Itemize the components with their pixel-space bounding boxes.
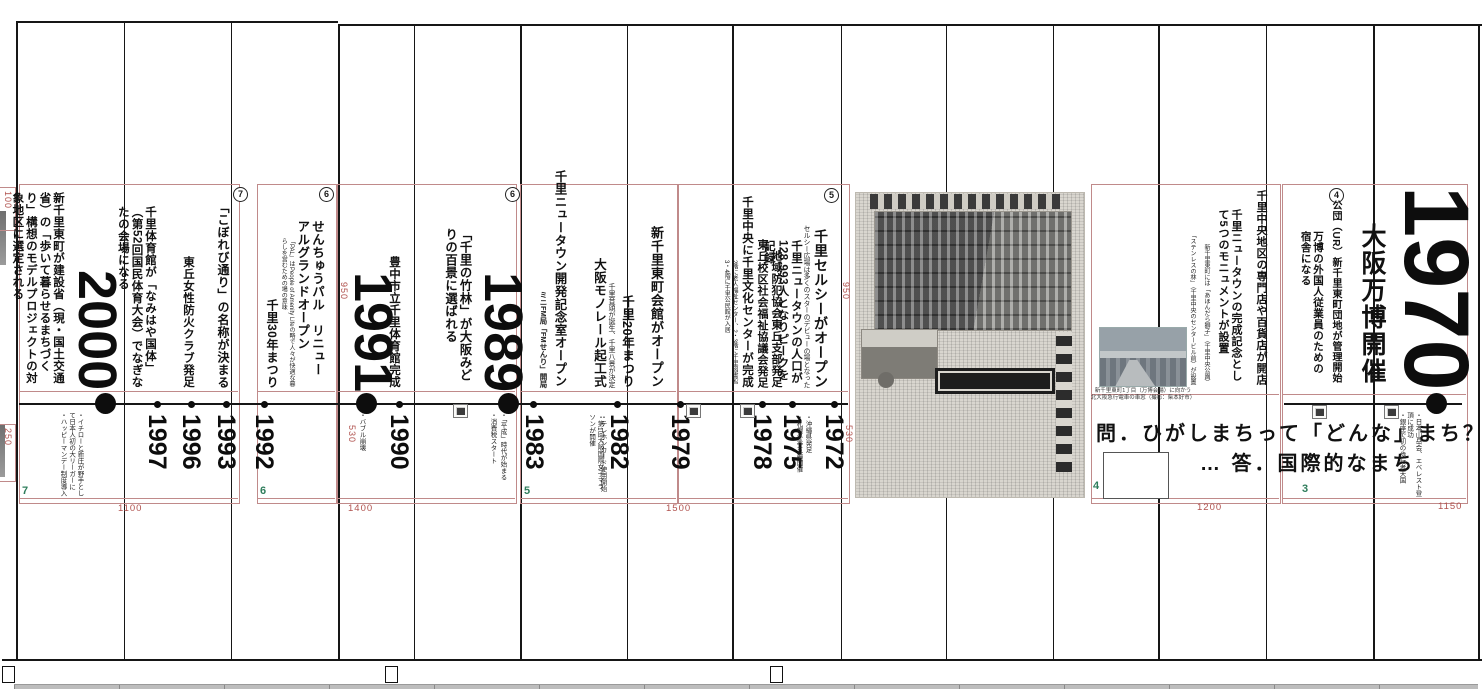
timeline-dot-1982: [614, 401, 621, 408]
world-note-2000: ・イチローと新庄が野手として日本人初の大リーガーに: [66, 412, 83, 500]
photo-marker-icon: [453, 404, 468, 418]
monument-note-1: 新千里東町には「あほんだら獅子」（千里中央公園）: [1198, 244, 1209, 385]
box-divider: [520, 391, 676, 392]
newspaper-photo-danchi: [875, 212, 1071, 330]
page-number-3: 3: [1302, 483, 1308, 495]
newspaper-masthead: [870, 194, 1060, 209]
event-floors-1978: 2階に老人福祉センター、2・3階に千里図書館 3・4階に千里公民館が入居: [719, 260, 737, 388]
answer-text: … 答．国際的なまち: [1200, 447, 1416, 476]
registration-square: [385, 666, 398, 683]
event-title-2000: 新千里東町が建設省（現・国土交通省）の「歩いて暮らせるまちづくり」構想のモデルプ…: [24, 192, 64, 388]
event-sub-1982: 千里音頭が誕生、千里八景が決定: [606, 283, 616, 388]
question-text: 問．ひがしまちって「どんな」まち？: [1096, 417, 1482, 446]
world-note-1991: ・バブル崩壊: [356, 412, 365, 451]
event-title-1972: 千里セルシーがオープン: [811, 229, 829, 389]
timeline-dot-1979: [677, 401, 684, 408]
year-1979: 1979: [667, 414, 692, 470]
timeline-document-scan: 100 250 7 7 新千里東町が建設省（現・国土交通省）の「歩いて暮らせるま…: [0, 0, 1482, 690]
world-note-1972: ・沖縄県発足: [802, 414, 811, 453]
event-title-1992: せんちゅうパル リニューアルグランドオープン: [292, 220, 324, 388]
photo-caption-line2: 北大阪急行電車の車窓（撮影：柴本好市）: [1091, 395, 1196, 401]
top-border-line-right: [338, 24, 1482, 26]
timeline-dot-1972: [831, 401, 838, 408]
world-note-1989: ・「平成」時代が始まる: [497, 412, 506, 480]
event-title2-1992: 千里30年まつり: [264, 299, 279, 388]
world-note-1989: ・消費税スタート: [487, 412, 496, 464]
page-number-4: 4: [1093, 480, 1099, 492]
newspaper-inset-photo: [862, 330, 937, 378]
dimension-label: 530: [844, 425, 854, 443]
spread-number-7: 7: [233, 187, 248, 202]
box-inner-bottom-rule: [520, 498, 676, 499]
year-1989: 1989: [476, 272, 530, 392]
photo-marker-icon: [1312, 405, 1327, 419]
year-1972: 1972: [821, 414, 846, 470]
timeline-dot-1983: [530, 401, 537, 408]
box-inner-bottom-rule: [1282, 498, 1466, 499]
event-title-monuments: 千里ニュータウンの完成記念として5つのモニュメントが設置: [1214, 209, 1242, 385]
event-title-1970-danchi: 公団（UR）新千里東町団地が管理開始: [1326, 200, 1341, 383]
bottom-ruler-bar: [14, 684, 1478, 689]
event-title-1991: 豊中市立千里体育館完成: [386, 256, 400, 388]
timeline-dot-1993: [223, 401, 230, 408]
timeline-dot-1975: [789, 401, 796, 408]
timeline-dot-1970: [1426, 393, 1447, 414]
year-1997: 1997: [144, 414, 169, 470]
world-note-2000: ・ハッピーマンデー制度導入: [57, 412, 66, 497]
year-1996: 1996: [178, 414, 203, 470]
dimension-label: 1500: [666, 503, 691, 514]
box-inner-bottom-rule: [19, 498, 238, 499]
event-title-1983: 千里ニュータウン開発記念室オープン: [551, 170, 567, 388]
timeline-dot-1989: [498, 393, 519, 414]
event-sub-1972: セルシー広場は多くのスターのデビューの場となった: [798, 225, 809, 388]
page-number-5: 5: [524, 485, 530, 497]
photo-marker-icon: [740, 404, 755, 418]
event-sub-1983: ミニFM局「FMせんり」開局: [537, 291, 548, 388]
dimension-label: 950: [841, 282, 851, 300]
dimension-label: 250: [3, 428, 13, 446]
newspaper-portrait: [878, 372, 894, 388]
timeline-dot-1992: [261, 401, 268, 408]
photo-marker-icon: [686, 404, 701, 418]
event-title-1997: 千里体育館が「なみはや国体」（第52回国民体育大会）でなぎなたの会場になる: [126, 206, 156, 388]
event-title-1993: 「こぼれび通り」の名称が決まる: [212, 201, 230, 389]
timeline-dot-1990: [396, 401, 403, 408]
dimension-label: 1200: [1197, 502, 1222, 513]
registration-square: [770, 666, 783, 683]
world-note-1982: ・第1回大阪国際女子マラソンが開催: [586, 414, 603, 494]
grid-line: [16, 21, 18, 661]
year-1992: 1992: [251, 414, 276, 470]
world-note-1970: ・日本山岳会、エベレスト登頂に成功: [1404, 412, 1421, 498]
event-title-1989: 「千里の竹林」が大阪みどりの百景に選ばれる: [428, 228, 472, 388]
timeline-dot-1978: [759, 401, 766, 408]
newspaper-headline-block: [935, 368, 1055, 394]
page-number-7: 7: [22, 485, 28, 497]
timeline-dot-1997: [154, 401, 161, 408]
box-inner-bottom-rule: [678, 498, 848, 499]
timeline-dot-2000: [95, 393, 116, 414]
year-1970: 1970: [1390, 186, 1482, 391]
top-border-line-left: [16, 21, 338, 23]
timeline-dot-1996: [188, 401, 195, 408]
photo-caption: 新千里東町1丁目（万博会場）に向かう 北大阪急行電車の車窓（撮影：柴本好市）: [1086, 388, 1200, 401]
event-title-1996: 東丘女性防火クラブ発足: [178, 256, 194, 388]
box-inner-bottom-rule: [257, 498, 335, 499]
dimension-label: 1100: [118, 503, 142, 514]
event-title-1979: 新千里東町会館がオープン: [648, 226, 664, 388]
highway-shape: [1115, 360, 1155, 386]
timeline-axis-left: [19, 403, 848, 405]
year-1983: 1983: [521, 414, 546, 470]
newspaper-article-scan: [855, 192, 1085, 498]
year-1993: 1993: [213, 414, 238, 470]
page-number-6: 6: [260, 485, 266, 497]
world-note-1972: ・札幌冬季五輪開催: [793, 414, 802, 473]
registration-square: [2, 666, 15, 683]
event-title-1978: 千里中央に千里文化センターが完成: [738, 196, 753, 388]
year-1978: 1978: [749, 414, 774, 470]
headline-expo70: 大阪万博開催: [1350, 223, 1386, 385]
photo-marker-icon: [1384, 405, 1399, 419]
world-note-1970: ・銀座で初の歩行者天国: [1396, 412, 1405, 484]
expo-railway-photo: [1100, 328, 1186, 386]
blank-photo-box: [1103, 452, 1169, 499]
spread-number-6: 6: [319, 187, 334, 202]
dimension-label: 1150: [1438, 501, 1462, 512]
box-divider: [678, 391, 848, 392]
timeline-dot-1991: [356, 393, 377, 414]
box-inner-bottom-rule: [337, 498, 515, 499]
event-title-shops: 千里中央地区の専門店や百貨店が開店: [1252, 190, 1267, 386]
year-1982: 1982: [606, 414, 631, 470]
event-title2-1982: 大阪モノレール起工式: [590, 258, 606, 388]
box-divider: [257, 391, 335, 392]
newspaper-side-headline: [1056, 332, 1072, 472]
spread-number-5: 5: [824, 188, 839, 203]
year-1990: 1990: [386, 414, 411, 470]
event-sub-1970-expo-lodging: 万博の外国人従業員のための宿舎になる: [1298, 231, 1324, 383]
event-title-1982: 千里20年まつり: [618, 295, 634, 388]
dimension-label: 1400: [348, 503, 373, 514]
box-divider: [19, 391, 238, 392]
event-note-1992: 「PAL」はPeople of Amenity Lifeの略で人々が快適な暮らし…: [280, 238, 294, 388]
bottom-border-line: [2, 659, 1482, 661]
spread-number-6b: 6: [505, 187, 520, 202]
photo-caption-line1: 新千里東町1丁目（万博会場）に向かう: [1095, 388, 1192, 394]
